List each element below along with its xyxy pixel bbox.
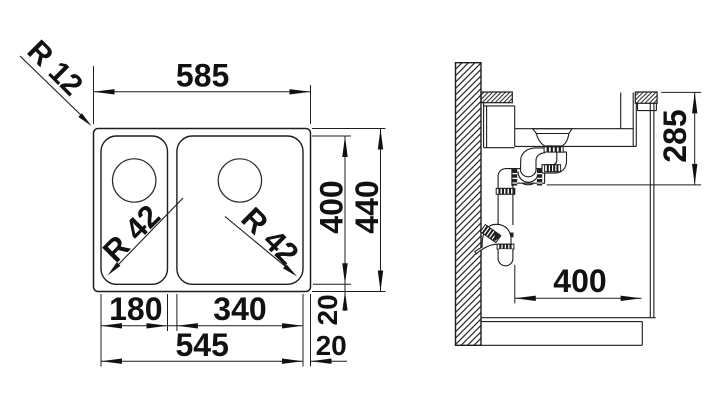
svg-text:400: 400 [313,180,349,233]
svg-text:20: 20 [312,294,343,325]
svg-text:340: 340 [213,291,266,327]
svg-text:20: 20 [316,330,347,361]
svg-text:R 42: R 42 [234,200,305,271]
svg-text:285: 285 [657,109,693,162]
svg-text:180: 180 [109,291,162,327]
svg-text:545: 545 [176,327,229,363]
svg-text:585: 585 [176,57,229,93]
svg-text:R 42: R 42 [96,198,167,269]
svg-text:R 12: R 12 [21,34,89,102]
svg-text:440: 440 [349,180,385,233]
svg-text:400: 400 [553,263,606,299]
